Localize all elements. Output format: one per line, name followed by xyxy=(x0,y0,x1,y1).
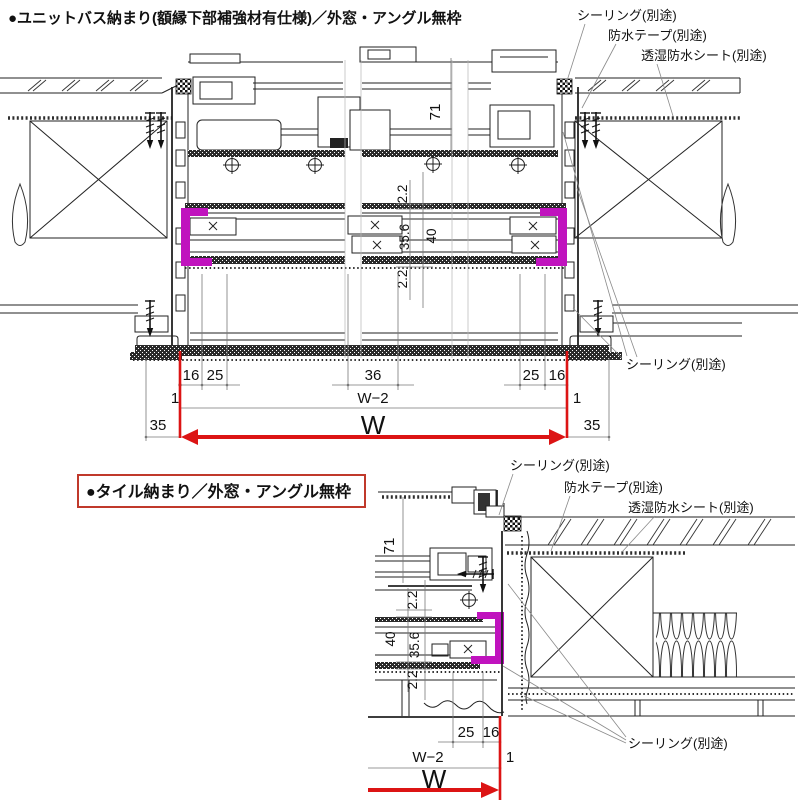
label-sealing-top: シーリング(別途) xyxy=(510,458,610,473)
dim-25: 25 xyxy=(458,724,475,741)
label-sealing-bottom: シーリング(別途) xyxy=(628,736,728,751)
right-wall-section xyxy=(575,78,798,337)
dim-25-left: 25 xyxy=(207,367,224,384)
tile-title-box: ●タイル納まり／外窓・アングル無枠 xyxy=(78,475,365,507)
dim-71: 71 xyxy=(381,538,398,555)
dim-35-6: 35.6 xyxy=(397,224,412,250)
dim-16-left: 16 xyxy=(183,367,200,384)
label-breathable-sheet: 透湿防水シート(別途) xyxy=(641,48,767,63)
dim-2-2-bottom: 2.2 xyxy=(395,270,410,289)
dim-40: 40 xyxy=(383,631,398,646)
dim-36: 36 xyxy=(365,367,382,384)
dim-1: 1 xyxy=(506,749,514,766)
window-frame-head xyxy=(145,47,601,346)
label-waterproof-tape: 防水テープ(別途) xyxy=(564,480,663,495)
unit-bath-drawing: ●ユニットバス納まり(額縁下部補強材有仕様)／外窓・アングル無枠 xyxy=(0,8,798,445)
tile-drawing: ●タイル納まり／外窓・アングル無枠 xyxy=(78,458,795,800)
label-sealing-top: シーリング(別途) xyxy=(577,8,677,23)
dim-16-right: 16 xyxy=(549,367,566,384)
tile-window-frame xyxy=(368,487,521,717)
cad-canvas: ●ユニットバス納まり(額縁下部補強材有仕様)／外窓・アングル無枠 xyxy=(0,0,800,800)
dim-35-left: 35 xyxy=(150,417,167,434)
tile-cut-line xyxy=(424,701,504,713)
dim-40: 40 xyxy=(424,228,439,243)
sealant-block xyxy=(504,516,521,531)
dim-w-minus-2: W−2 xyxy=(357,390,388,407)
dim-71: 71 xyxy=(427,104,444,121)
label-sealing-bottom: シーリング(別途) xyxy=(626,357,726,372)
dim-35-6: 35.6 xyxy=(407,632,422,658)
unit-bath-title: ●ユニットバス納まり(額縁下部補強材有仕様)／外窓・アングル無枠 xyxy=(8,9,461,27)
sealant-block-right xyxy=(557,79,572,94)
dim-2-2-top: 2.2 xyxy=(395,185,410,204)
dim-1-right: 1 xyxy=(573,390,581,407)
sealant-block-left xyxy=(176,79,191,94)
tile-title: ●タイル納まり／外窓・アングル無枠 xyxy=(86,482,351,501)
dim-2-2-bottom: 2.2 xyxy=(405,671,420,690)
dim-16: 16 xyxy=(483,724,500,741)
tile-band xyxy=(508,700,795,716)
dim-1-left: 1 xyxy=(171,390,179,407)
insulation xyxy=(653,613,737,677)
dim-2-2-top: 2.2 xyxy=(405,591,420,610)
dim-25-right: 25 xyxy=(523,367,540,384)
dim-35-right: 35 xyxy=(584,417,601,434)
drawing-page: ●ユニットバス納まり(額縁下部補強材有仕様)／外窓・アングル無枠 xyxy=(0,0,800,800)
label-breathable-sheet: 透湿防水シート(別途) xyxy=(628,500,754,515)
label-waterproof-tape: 防水テープ(別途) xyxy=(608,28,707,43)
